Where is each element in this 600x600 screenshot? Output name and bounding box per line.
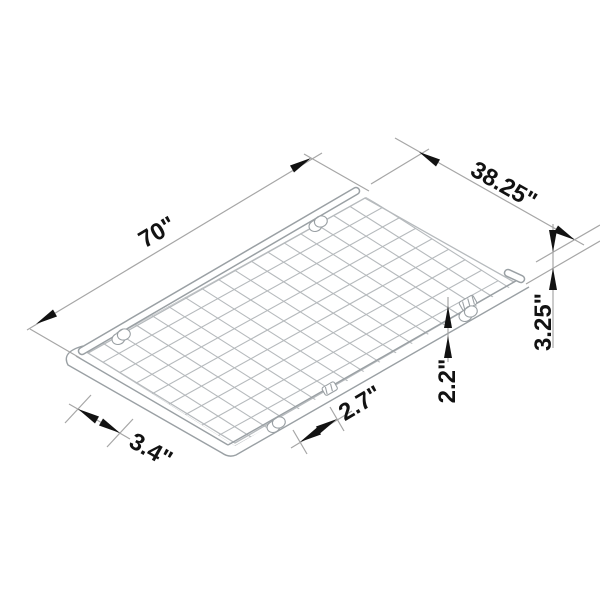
mesh-wire xyxy=(284,243,437,340)
mesh-wire xyxy=(102,343,255,440)
mesh-wire xyxy=(218,279,371,376)
arrowhead xyxy=(549,230,557,252)
mesh-wire xyxy=(119,334,272,431)
dimension-diagram: 70" 38.25" 3.25" 2.2" 2.7" 3.4" xyxy=(0,0,600,600)
dimension-label-width: 38.25" xyxy=(466,156,541,215)
mesh-wire xyxy=(300,233,453,330)
arrowhead xyxy=(444,336,452,358)
arrowhead xyxy=(36,310,57,325)
mesh-wire xyxy=(185,297,338,394)
caster-wheel xyxy=(265,415,288,434)
ext-line-325-top xyxy=(536,225,600,262)
mesh-wire xyxy=(317,224,470,321)
ext-line-70-right xyxy=(304,154,369,191)
arrowhead xyxy=(99,419,120,434)
mesh-wire xyxy=(152,239,432,394)
arrowhead xyxy=(419,152,440,167)
arrowhead xyxy=(316,419,337,434)
mesh-wire xyxy=(267,252,420,349)
dimension-label-total-height: 3.25" xyxy=(530,293,557,351)
ext-line-3825-left xyxy=(371,149,429,184)
mesh-wire xyxy=(251,261,404,358)
dimension-label-caster-inset-left: 3.4" xyxy=(125,428,177,474)
arrowhead xyxy=(549,268,557,290)
mesh-wire xyxy=(350,206,503,303)
dimension-label-frame-height: 2.2" xyxy=(434,359,461,404)
dim-line-34 xyxy=(69,404,130,439)
arrowhead xyxy=(554,226,575,241)
dimension-label-caster-inset-right: 2.7" xyxy=(334,381,386,427)
mesh-wire xyxy=(201,288,354,385)
mesh-wire xyxy=(136,228,416,383)
ext-line-325-bottom xyxy=(526,241,600,284)
caster-wheel xyxy=(457,304,480,323)
mesh-wire xyxy=(234,270,387,367)
ext-line-70-left xyxy=(30,329,80,358)
mesh-wire xyxy=(168,306,321,403)
mesh-wire xyxy=(152,316,305,413)
mesh-wire xyxy=(135,325,288,422)
dimension-label-length: 70" xyxy=(134,211,181,254)
arrowhead xyxy=(290,158,311,173)
diagram-canvas: 70" 38.25" 3.25" 2.2" 2.7" 3.4" xyxy=(0,0,600,600)
mesh-wire xyxy=(333,215,486,312)
arrowhead xyxy=(78,409,99,424)
